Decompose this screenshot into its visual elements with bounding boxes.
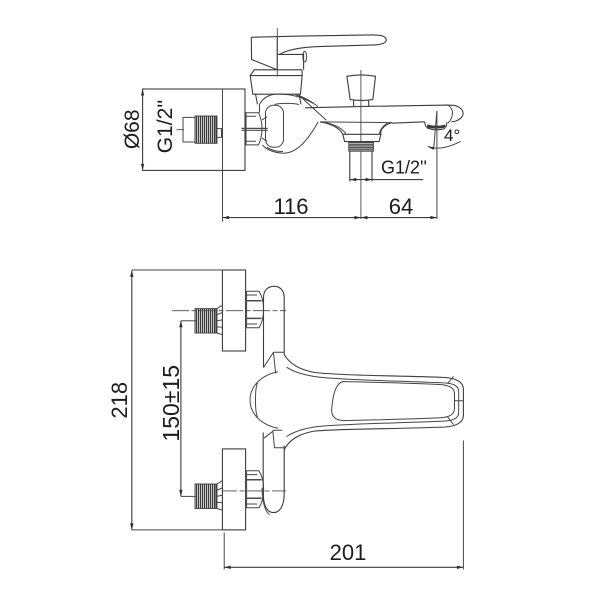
svg-text:201: 201 <box>330 540 367 565</box>
svg-text:Ø68: Ø68 <box>121 109 144 149</box>
svg-text:64: 64 <box>389 194 413 219</box>
svg-text:G1/2'': G1/2'' <box>381 158 427 178</box>
svg-text:G1/2'': G1/2'' <box>154 100 177 154</box>
svg-text:218: 218 <box>107 382 132 419</box>
svg-text:4°: 4° <box>444 126 460 145</box>
svg-text:116: 116 <box>273 194 308 219</box>
svg-text:150±15: 150±15 <box>158 365 184 442</box>
